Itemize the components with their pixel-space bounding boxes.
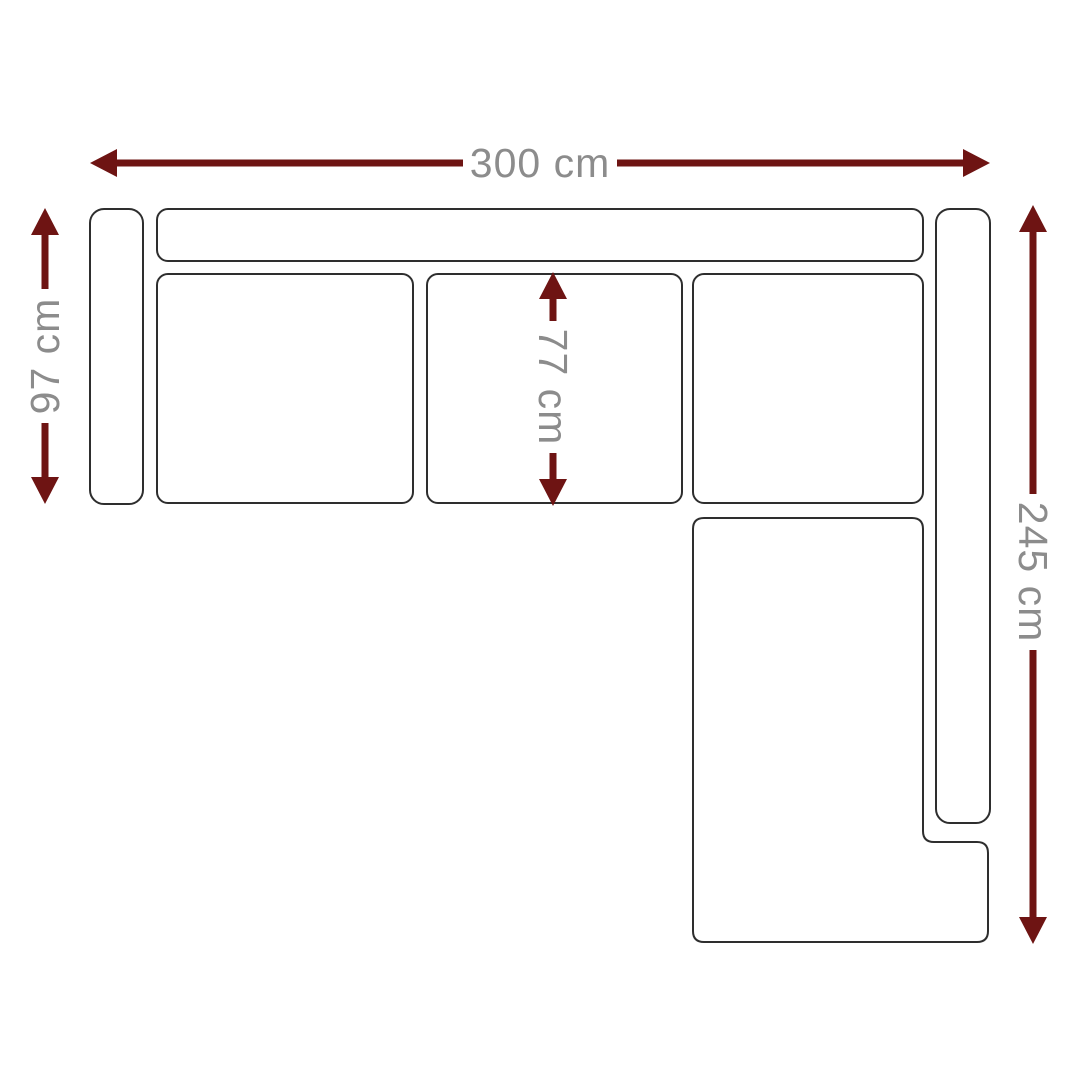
dimension-label-left-depth: 97 cm — [22, 298, 68, 415]
dimension-label-right-length: 245 cm — [1010, 502, 1056, 642]
sofa-dimension-diagram: 300 cm 97 cm 77 cm 245 cm — [0, 0, 1080, 1080]
arrowhead-up-icon — [1019, 205, 1047, 232]
sofa-outline — [90, 209, 990, 942]
top-backrest — [157, 209, 923, 261]
diagram-svg: 300 cm 97 cm 77 cm 245 cm — [0, 0, 1080, 1080]
dimension-label-seat-depth: 77 cm — [530, 329, 576, 446]
arrowhead-right-icon — [963, 149, 990, 177]
dimension-total-width: 300 cm — [90, 140, 990, 186]
right-backrest — [936, 209, 990, 823]
seat-cushion-3 — [693, 274, 923, 503]
arrowhead-down-icon — [31, 477, 59, 504]
left-armrest — [90, 209, 143, 504]
seat-cushion-1 — [157, 274, 413, 503]
arrowhead-up-icon — [31, 208, 59, 235]
arrowhead-left-icon — [90, 149, 117, 177]
dimension-left-depth: 97 cm — [22, 208, 68, 504]
arrowhead-down-icon — [1019, 917, 1047, 944]
dimension-right-length: 245 cm — [1010, 205, 1056, 944]
dimension-label-total-width: 300 cm — [470, 140, 610, 186]
